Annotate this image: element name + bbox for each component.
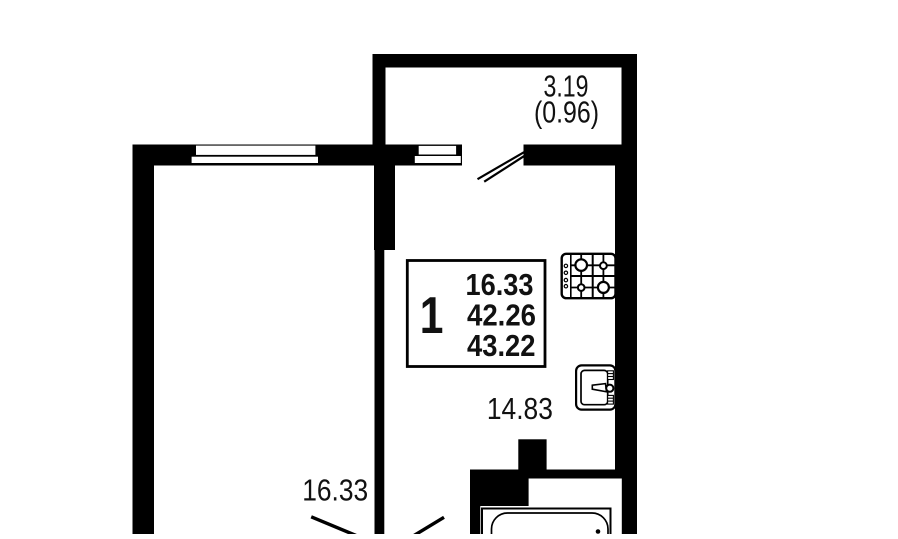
svg-text:43.22: 43.22: [467, 328, 536, 363]
svg-text:(0.96): (0.96): [534, 95, 599, 130]
svg-text:14.83: 14.83: [487, 391, 553, 426]
svg-text:16.33: 16.33: [302, 473, 368, 508]
svg-text:1: 1: [420, 287, 444, 345]
